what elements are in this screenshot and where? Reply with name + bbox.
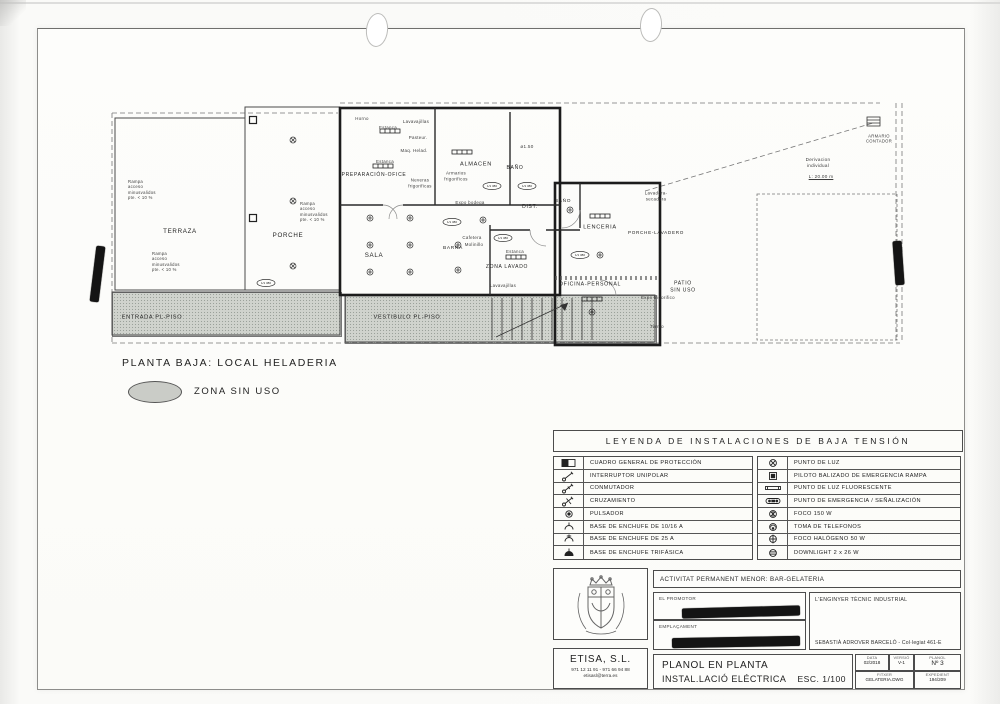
plan-label-expo-frigorifico: Expo frigorifico [641, 295, 675, 301]
zona-sin-uso-swatch [128, 381, 182, 403]
plan-label-termo: Termo [650, 324, 664, 330]
plan-label--1-50: ø1.50 [520, 144, 533, 150]
cruzamiento-icon [554, 495, 584, 507]
interruptor-unipolar-icon [554, 470, 584, 482]
legend-title: LEYENDA DE INSTALACIONES DE BAJA TENSIÓN [553, 430, 963, 452]
activity-cell: ACTIVITAT PERMANENT MENOR: BAR-GELATERIA [653, 570, 961, 588]
plan-label-vestibulo-pl-piso: VESTIBULO PL-PISO [374, 314, 441, 321]
fluorescente-icon [511, 255, 521, 259]
field-planol-value: Nº 3 [915, 660, 960, 667]
drawing-title-line2: INSTAL.LACIÓ ELÉCTRICA [662, 674, 786, 684]
legend-row: CONMUTADOR [554, 483, 752, 496]
legend-label: BASE DE ENCHUFE DE 25 A [584, 536, 674, 542]
plan-label-molinillo: Molinillo [465, 242, 484, 248]
legend: LEYENDA DE INSTALACIONES DE BAJA TENSIÓN… [553, 430, 963, 562]
plan-label-armarios-frigorifico: Armarios frigorificos [444, 170, 468, 181]
legend-label: PUNTO DE LUZ FLUORESCENTE [788, 485, 892, 491]
legend-label: PUNTO DE EMERGENCIA / SEÑALIZACIÓN [788, 498, 921, 504]
company-phone: 971 12 11 91 - 971 66 94 88 [554, 667, 647, 672]
promoter-cell: EL PROMOTOR [653, 592, 806, 620]
legend-row: FOCO 150 W [758, 508, 960, 521]
plan-label-pasteur-: Pasteur. [409, 135, 428, 141]
plan-label-maq-helad-: Maq. Helad. [401, 148, 428, 154]
plan-label-rampa-acceso-minusva: Rampa acceso minusvalidos pte. < 10 % [152, 251, 180, 273]
plan-label-rampa-acceso-minusva: Rampa acceso minusvalidos pte. < 10 % [300, 201, 328, 223]
plan-label-porche-lavadero: PORCHE-LAVADERO [628, 230, 684, 236]
punto-de-luz-icon [758, 457, 788, 469]
plan-label-l-20-00-m: L: 20.00 m [809, 174, 834, 180]
legend-row: CRUZAMIENTO [554, 495, 752, 508]
legend-label: FOCO 150 W [788, 511, 832, 517]
plan-label-oficina-personal: OFICINA-PERSONAL [559, 282, 621, 289]
enchufe-trifasica-icon [554, 546, 584, 559]
circuit-tag-text: 1/1 380 [575, 253, 585, 257]
downlight-icon [407, 215, 413, 221]
circuit-tag-text: 1/1 380 [447, 220, 457, 224]
downlight-icon [599, 254, 601, 256]
plan-label-sala: SALA [365, 252, 384, 260]
field-versio: VERSIÓ V-1 [889, 654, 914, 671]
legend-row: INTERRUPTOR UNIPOLAR [554, 470, 752, 483]
piloto-emergencia-icon [758, 470, 788, 482]
plan-label-patio-sin-uso: PATIO SIN USO [670, 281, 695, 294]
fluorescente-icon [595, 214, 605, 218]
redacted-promoter-name [682, 605, 800, 618]
downlight-icon [369, 217, 371, 219]
scale-text: ESC. 1/100 [798, 674, 846, 684]
drawing-title-line1: PLANOL EN PLANTA [662, 660, 768, 671]
title-block: ACTIVITAT PERMANENT MENOR: BAR-GELATERIA… [553, 566, 963, 689]
legend-row: PUNTO DE LUZ [758, 457, 960, 470]
downlight-icon [369, 271, 371, 273]
company-cell: ETISA, S.L. 971 12 11 91 - 971 66 94 88 … [553, 648, 648, 689]
emergencia-senalizacion-icon [758, 495, 788, 507]
plan-label-lenceria: LENCERIA [583, 224, 617, 231]
plan-label-ba-o: BAÑO [555, 199, 571, 205]
staircase [492, 298, 592, 340]
field-data-value: 02/2018 [856, 660, 888, 665]
foco-150-icon [758, 508, 788, 520]
downlight-icon [480, 217, 486, 223]
downlight-icon [482, 219, 484, 221]
legend-row: BASE DE ENCHUFE DE 25 A [554, 534, 752, 547]
plan-label-zona-lavado: ZONA LAVADO [486, 264, 528, 271]
legend-label: PUNTO DE LUZ [788, 460, 840, 466]
company-email: etisasl@terra.es [554, 673, 647, 678]
legend-row: BASE DE ENCHUFE DE 10/16 A [554, 521, 752, 534]
plan-title: PLANTA BAJA: LOCAL HELADERIA [122, 357, 338, 369]
plan-label-barra: BARRA [443, 246, 463, 252]
redacted-location [672, 636, 800, 648]
circuit-tag-text: 1/1 380 [487, 184, 497, 188]
punto-de-luz-icon [291, 138, 295, 142]
legend-row: BASE DE ENCHUFE TRIFÁSICA [554, 546, 752, 559]
downlight-icon [597, 252, 603, 258]
downlight-icon [567, 207, 573, 213]
legend-label: BASE DE ENCHUFE TRIFÁSICA [584, 550, 684, 556]
legend-column-left: CUADRO GENERAL DE PROTECCIÓNINTERRUPTOR … [553, 456, 753, 560]
legend-row: TOMA DE TELEFONOS [758, 521, 960, 534]
legend-row: PUNTO DE EMERGENCIA / SEÑALIZACIÓN [758, 495, 960, 508]
downlight-icon [407, 269, 413, 275]
fluorescente-icon [758, 483, 788, 495]
scan-corner-smudge [0, 0, 26, 26]
conmutador-icon [554, 483, 584, 495]
plan-label-almacen: ALMACEN [460, 161, 492, 168]
circuit-tag-text: 1/1 380 [498, 236, 508, 240]
legend-row: CUADRO GENERAL DE PROTECCIÓN [554, 457, 752, 470]
fluorescente-icon [457, 150, 467, 154]
downlight-icon [409, 271, 411, 273]
plan-label-cafetera: Cafetera [462, 235, 481, 241]
plan-label-rampa-acceso-minusva: Rampa acceso minusvalidos pte. < 10 % [128, 179, 156, 201]
engineer-name: SEBASTIÀ ADROVER BARCELÓ - Col·legiat 46… [815, 640, 942, 646]
plan-label-derivacion-individua: Derivacion individual [806, 157, 831, 169]
plan-label-armario-contador: ARMARIO CONTADOR [866, 134, 892, 145]
drawing-title-cell: PLANOL EN PLANTA INSTAL.LACIÓ ELÉCTRICA … [653, 654, 853, 689]
downlight-icon [409, 217, 411, 219]
plan-label-estanca: Estanca [506, 249, 524, 255]
armario-contador-icon [867, 117, 880, 126]
engineer-cell: L'ENGINYER TÈCNIC INDUSTRIAL SEBASTIÀ AD… [809, 592, 961, 650]
legend-label: DOWNLIGHT 2 x 26 W [788, 550, 859, 556]
downlight-icon [367, 215, 373, 221]
college-stamp-cell [553, 568, 648, 640]
activity-text: ACTIVITAT PERMANENT MENOR: BAR-GELATERIA [660, 576, 824, 583]
plan-label-estanca: Estanca [379, 125, 397, 131]
circuit-tag-text: 1/1 380 [261, 281, 271, 285]
plan-label-lavavajillas: Lavavajillas [490, 283, 516, 289]
column-marker [250, 117, 257, 124]
location-label: EMPLAÇAMENT [659, 624, 697, 629]
field-expedient: EXPEDIENT 194/209 [914, 671, 961, 689]
cuadro-general-icon [554, 457, 584, 469]
circuit-tag-text: 1/1 380 [522, 184, 532, 188]
column-marker [250, 215, 257, 222]
legend-label: CUADRO GENERAL DE PROTECCIÓN [584, 460, 702, 466]
legend-label: FOCO HALÓGENO 50 W [788, 536, 865, 542]
coat-of-arms-logo [572, 573, 630, 635]
location-cell: EMPLAÇAMENT [653, 620, 806, 650]
plan-label-estanca: Estanca [376, 159, 394, 165]
pulsador-icon [554, 508, 584, 520]
legend-row: PILOTO BALIZADO DE EMERGENCIA RAMPA [758, 470, 960, 483]
scan-edge-artifact [0, 2, 1000, 4]
legend-label: TOMA DE TELEFONOS [788, 524, 861, 530]
foco-halogeno-icon [758, 534, 788, 546]
field-expedient-value: 194/209 [915, 677, 960, 682]
plan-label-lavavajillas: Lavavajillas [403, 119, 429, 125]
legend-label: CONMUTADOR [584, 485, 634, 491]
downlight-icon [367, 242, 373, 248]
zona-sin-uso-label: ZONA SIN USO [194, 386, 281, 397]
punto-de-luz-icon [291, 199, 295, 203]
downlight-icon [407, 242, 413, 248]
legend-label: PULSADOR [584, 511, 624, 517]
legend-row: DOWNLIGHT 2 x 26 W [758, 546, 960, 559]
downlight-icon [455, 267, 461, 273]
legend-label: CRUZAMIENTO [584, 498, 635, 504]
field-data: DATA 02/2018 [855, 654, 889, 671]
downlight-icon [369, 244, 371, 246]
property-boundary-dashed [112, 103, 902, 343]
legend-label: INTERRUPTOR UNIPOLAR [584, 473, 668, 479]
derivacion-individual-line [645, 123, 873, 191]
field-versio-value: V-1 [890, 660, 913, 665]
thin-walls [112, 107, 655, 342]
fluorescente-icon [587, 297, 597, 301]
enchufe-25-icon [554, 534, 584, 546]
field-fitxer: FITXER GELATERIA.DWG [855, 671, 914, 689]
downlight-icon [457, 269, 459, 271]
downlight-icon [367, 269, 373, 275]
engineer-label: L'ENGINYER TÈCNIC INDUSTRIAL [815, 597, 907, 603]
toma-telefonos-icon [758, 521, 788, 533]
floor-plan-walls: 1/1 3801/1 3801/1 3801/1 3801/1 3801/1 3… [100, 90, 910, 360]
legend-row: PUNTO DE LUZ FLUORESCENTE [758, 483, 960, 496]
field-fitxer-value: GELATERIA.DWG [856, 677, 913, 682]
plan-label-expo-bodega: Expo bodega [455, 200, 484, 206]
legend-column-right: PUNTO DE LUZPILOTO BALIZADO DE EMERGENCI… [757, 456, 961, 560]
legend-label: BASE DE ENCHUFE DE 10/16 A [584, 524, 683, 530]
punto-de-luz-icon [291, 264, 295, 268]
field-planol: PLANOL Nº 3 [914, 654, 961, 671]
plan-label-porche: PORCHE [273, 232, 304, 240]
legend-row: PULSADOR [554, 508, 752, 521]
scanned-sheet-page: 1/1 3801/1 3801/1 3801/1 3801/1 3801/1 3… [0, 0, 1000, 704]
downlight-icon [569, 209, 571, 211]
plan-label-lavadora-secadora: Lavadora- secadora [645, 190, 667, 201]
plan-label-horno: Horno [355, 116, 368, 122]
floor-plan: 1/1 3801/1 3801/1 3801/1 3801/1 3801/1 3… [100, 90, 910, 360]
enchufe-10-16-icon [554, 521, 584, 533]
plan-label-entrada-pl-piso: ENTRADA PL-PISO [122, 314, 183, 321]
plan-label-ba-o: BAÑO [507, 165, 524, 172]
plan-label-neveras-frigorificas: Neveras frigorificas [408, 177, 432, 188]
plan-label-terraza: TERRAZA [163, 228, 197, 236]
promoter-label: EL PROMOTOR [659, 596, 696, 601]
company-name: ETISA, S.L. [554, 654, 647, 665]
plan-label-preparaci-n-ofice: PREPARACIÓN-OFICE [342, 172, 407, 179]
legend-label: PILOTO BALIZADO DE EMERGENCIA RAMPA [788, 473, 927, 479]
plan-label-dist-: DIST. [522, 204, 538, 211]
downlight-icon [758, 546, 788, 559]
downlight-icon [409, 244, 411, 246]
legend-row: FOCO HALÓGENO 50 W [758, 534, 960, 547]
